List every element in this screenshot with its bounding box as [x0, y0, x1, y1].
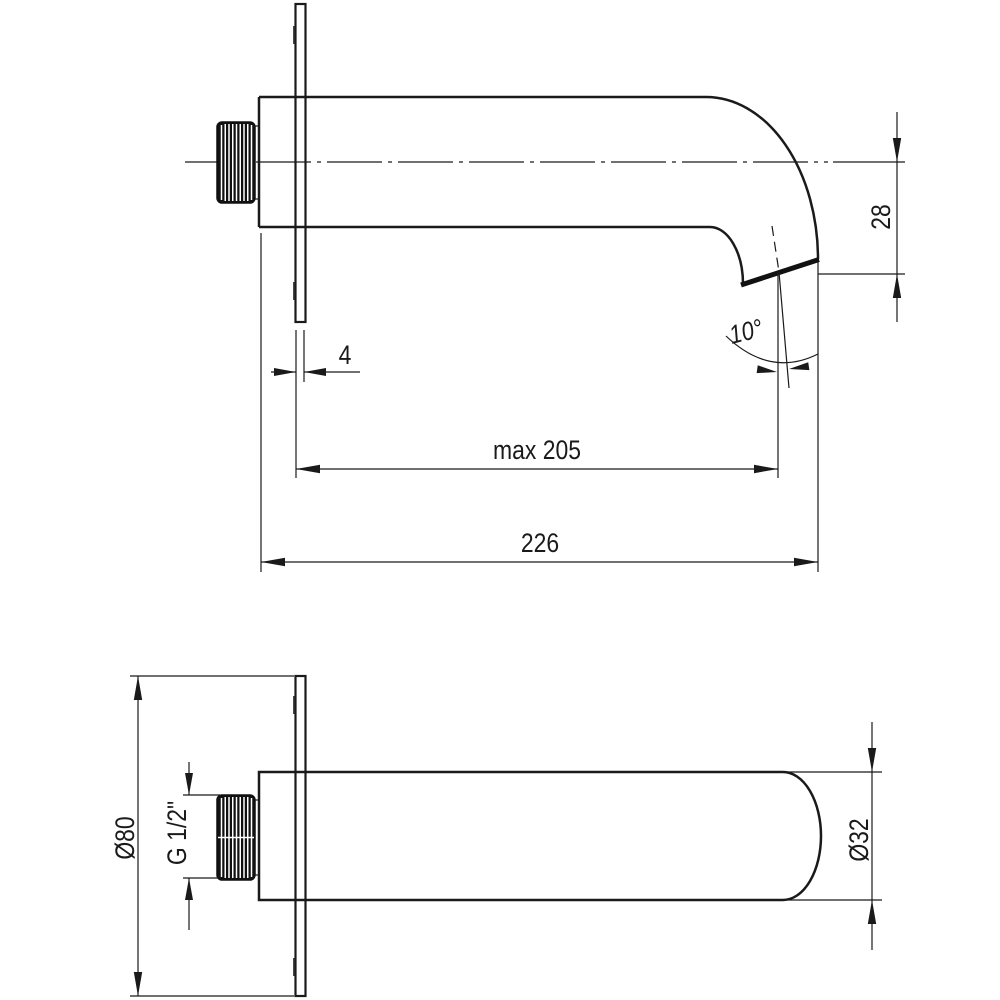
spout-body — [259, 772, 821, 900]
dim-arrow — [794, 558, 818, 566]
outlet-axis-dashed — [772, 226, 779, 272]
spout-inner-curve — [710, 227, 743, 284]
dim-arrow — [296, 465, 320, 473]
dim-label-4: 4 — [339, 340, 352, 370]
dim-arrow — [868, 900, 876, 924]
dim-max-projection: max 205 — [296, 272, 778, 478]
thread-connector — [217, 795, 259, 880]
wall-plate — [296, 676, 306, 996]
dim-label-d80: Ø80 — [110, 816, 140, 859]
dim-spout-diameter: Ø32 — [788, 722, 882, 950]
dim-arrow — [274, 368, 296, 376]
technical-drawing-page: 4 max 205 226 28 — [0, 0, 1000, 1000]
wall-plate — [296, 4, 306, 322]
dim-arrow — [134, 676, 142, 700]
dim-label-d32: Ø32 — [844, 818, 874, 861]
thread-stripes — [222, 124, 252, 201]
dim-arrow — [185, 773, 193, 795]
thread-connector — [217, 122, 259, 203]
dim-total-length: 226 — [261, 233, 818, 572]
side-view: 4 max 205 226 28 — [185, 4, 905, 572]
dim-arrow — [754, 465, 778, 473]
dim-label-226: 226 — [521, 528, 559, 558]
spout-technical-drawing: 4 max 205 226 28 — [0, 0, 1000, 1000]
dim-outlet-height: 28 — [818, 112, 905, 322]
dim-arrow — [304, 368, 326, 376]
dim-arrow — [893, 274, 901, 298]
dim-label-10deg: 10° — [726, 314, 766, 350]
dim-arrow — [757, 365, 778, 376]
dim-arrow — [261, 558, 285, 566]
dim-arrow — [788, 362, 809, 373]
outlet-axis-line — [779, 272, 789, 388]
dim-arrow — [893, 138, 901, 162]
dim-arrow — [134, 972, 142, 996]
dim-outlet-angle: 10° — [726, 314, 818, 376]
dim-label-g12: G 1/2" — [162, 801, 192, 865]
plan-view: Ø80 G 1/2" Ø32 — [110, 676, 882, 996]
dim-arrow — [868, 748, 876, 772]
dim-label-28: 28 — [866, 204, 896, 230]
dim-arrow — [185, 878, 193, 900]
spout-body — [259, 97, 819, 285]
spout-outer-curve — [706, 97, 818, 259]
dim-label-max-205: max 205 — [493, 435, 581, 465]
dim-thread-size: G 1/2" — [162, 762, 220, 930]
dim-flange-diameter: Ø80 — [110, 676, 294, 996]
dim-plate-thickness: 4 — [271, 330, 360, 478]
